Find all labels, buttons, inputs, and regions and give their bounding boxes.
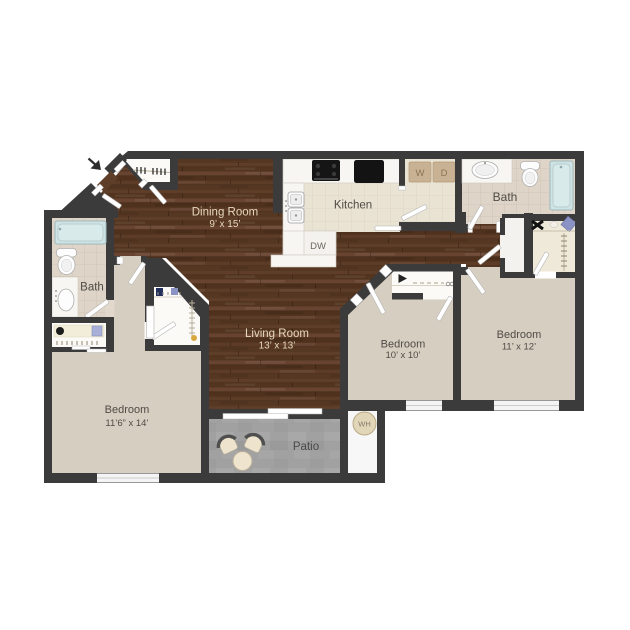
svg-text:Bath: Bath — [493, 190, 518, 204]
svg-text:9’ x 15’: 9’ x 15’ — [209, 219, 240, 230]
svg-text:Bedroom: Bedroom — [105, 404, 150, 416]
svg-text:10’ x 10’: 10’ x 10’ — [385, 350, 420, 361]
svg-text:Bath: Bath — [80, 282, 104, 294]
svg-text:W: W — [416, 168, 425, 179]
svg-text:Kitchen: Kitchen — [334, 200, 372, 212]
svg-text:DW: DW — [310, 241, 326, 252]
svg-text:D: D — [441, 168, 448, 179]
svg-text:Bedroom: Bedroom — [381, 339, 426, 351]
svg-text:11’ x 12’: 11’ x 12’ — [502, 342, 536, 353]
svg-text:Bedroom: Bedroom — [497, 329, 542, 341]
svg-text:11’6” x 14’: 11’6” x 14’ — [105, 418, 148, 429]
svg-text:Patio: Patio — [293, 441, 319, 453]
svg-text:Living Room: Living Room — [245, 328, 309, 340]
svg-text:13’ x 13’: 13’ x 13’ — [259, 341, 296, 352]
svg-text:Dining Room: Dining Room — [192, 207, 258, 219]
svg-text:WH: WH — [358, 420, 371, 429]
